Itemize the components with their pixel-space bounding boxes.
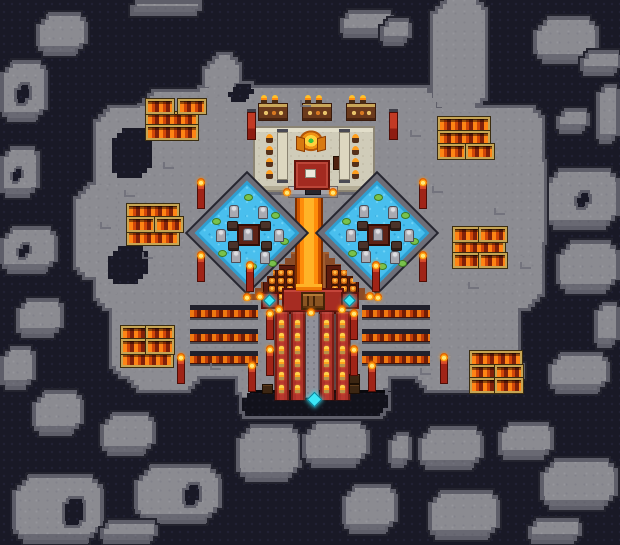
lava-trough [121, 339, 149, 354]
cyan-gem[interactable] [263, 294, 276, 307]
carpet-candle [295, 333, 300, 341]
altar-torch [360, 95, 366, 104]
red-banner [247, 112, 256, 140]
torch-pillar [248, 366, 256, 392]
flame-icon [350, 345, 358, 353]
carpet-candle [295, 320, 300, 328]
ground-crack [124, 190, 135, 197]
central-walkway [305, 312, 319, 398]
torch-pillar [419, 256, 427, 282]
lava-trough [453, 227, 481, 242]
lily-pad [218, 250, 227, 257]
ground-crack [520, 262, 531, 269]
carpet-candle [340, 359, 345, 367]
torch-pillar [266, 314, 274, 340]
flame-icon [243, 293, 251, 301]
lava-jar[interactable] [277, 269, 285, 277]
altar-torch [272, 95, 278, 104]
lava-jar[interactable] [286, 277, 294, 285]
carpet-candle [279, 385, 284, 393]
wall-scroll [339, 132, 350, 180]
flame-icon [350, 309, 358, 317]
flame-icon [177, 353, 185, 361]
torch-pillar [197, 183, 205, 209]
lava-trench [362, 329, 430, 342]
red-carpet [291, 312, 305, 400]
flame-icon [338, 305, 346, 313]
flame-icon [307, 308, 315, 316]
flame-icon [197, 178, 205, 186]
pond-creature[interactable] [228, 241, 239, 251]
ground-crack [468, 282, 479, 289]
flame-icon [419, 178, 427, 186]
lava-trough [146, 339, 174, 354]
lava-jar[interactable] [331, 277, 339, 285]
temple-candle [266, 146, 273, 155]
flame-icon [419, 251, 427, 259]
torch-pillar [350, 350, 358, 376]
ground-crack [210, 363, 221, 370]
carpet-candle [340, 333, 345, 341]
pond-statue[interactable] [361, 250, 371, 263]
lava-trough [470, 378, 498, 393]
red-carpet [320, 312, 334, 400]
lava-jar[interactable] [277, 277, 285, 285]
carpet-candle [295, 385, 300, 393]
carpet-candle [295, 372, 300, 380]
shrine-statue[interactable] [373, 228, 383, 241]
temple-candle [352, 158, 359, 167]
supply-crate[interactable] [349, 384, 360, 394]
pond-statue[interactable] [388, 206, 398, 219]
flame-icon [266, 309, 274, 317]
torch-pillar [177, 358, 185, 384]
lava-jar[interactable] [286, 269, 294, 277]
flame-icon [366, 292, 374, 300]
lily-pad [348, 250, 357, 257]
lava-trench [362, 305, 430, 318]
pond-creature[interactable] [260, 221, 271, 231]
flame-icon [368, 361, 376, 369]
flame-icon [248, 361, 256, 369]
pond-creature[interactable] [358, 241, 369, 251]
carpet-candle [295, 346, 300, 354]
torch-pillar [372, 266, 380, 292]
lava-trough [453, 253, 481, 268]
pond-creature[interactable] [357, 221, 368, 231]
torch-pillar [266, 350, 274, 376]
red-carpet [275, 312, 289, 400]
game-map-stage[interactable] [0, 0, 620, 545]
lava-jar[interactable] [349, 277, 357, 285]
lava-trough [146, 99, 174, 114]
lava-trough [495, 378, 523, 393]
golden-idol[interactable] [296, 130, 326, 154]
pond-statue[interactable] [390, 251, 400, 264]
flame-icon [374, 293, 382, 301]
shrine-statue[interactable] [243, 228, 253, 241]
torch-pillar [440, 358, 448, 384]
carpet-candle [324, 359, 329, 367]
treasure-chest[interactable] [301, 292, 325, 310]
ground-crack [432, 186, 443, 193]
ground-crack [300, 100, 311, 107]
lily-pad [212, 218, 221, 225]
pond-creature[interactable] [261, 241, 272, 251]
torch-pillar [246, 266, 254, 292]
carpet-candle [340, 372, 345, 380]
ground-crack [100, 222, 111, 229]
pond-shrine [367, 224, 390, 246]
cyan-gem[interactable] [343, 294, 356, 307]
flame-icon [266, 345, 274, 353]
pond-statue[interactable] [404, 229, 414, 242]
carpet-candle [295, 359, 300, 367]
ground-crack [410, 130, 421, 137]
carpet-candle [279, 372, 284, 380]
lava-trough [121, 352, 173, 367]
carpet-candle [340, 320, 345, 328]
temple-candle [266, 170, 273, 179]
lava-jar[interactable] [268, 277, 276, 285]
pond-statue[interactable] [346, 229, 356, 242]
ground-crack [142, 252, 153, 259]
altar-torch [349, 95, 355, 104]
pond-statue[interactable] [229, 205, 239, 218]
flame-icon [197, 251, 205, 259]
ground-crack [494, 208, 505, 215]
lava-trench [190, 329, 258, 342]
ground-crack [420, 368, 431, 375]
torch-pillar [197, 256, 205, 282]
carpet-candle [324, 346, 329, 354]
flame-icon [440, 353, 448, 361]
carpet-candle [340, 385, 345, 393]
temple-candle [266, 134, 273, 143]
offering-table[interactable] [258, 103, 288, 121]
carpet-candle [324, 320, 329, 328]
lava-trough [438, 117, 490, 132]
carpet-candle [279, 333, 284, 341]
flame-icon [329, 188, 337, 196]
pond-statue[interactable] [231, 250, 241, 263]
lava-river-mouth [296, 284, 322, 291]
pond-statue[interactable] [216, 229, 226, 242]
flame-icon [372, 261, 380, 269]
temple-candle [352, 134, 359, 143]
torch-pillar [419, 183, 427, 209]
lily-pad [374, 194, 383, 201]
torch-pillar [368, 366, 376, 392]
pond-statue[interactable] [359, 205, 369, 218]
lava-jar[interactable] [331, 269, 339, 277]
lava-trough [438, 144, 466, 159]
lily-pad [342, 218, 351, 225]
temple-candle [266, 158, 273, 167]
pond-creature[interactable] [391, 241, 402, 251]
lava-trough [146, 125, 198, 140]
carpet-candle [279, 359, 284, 367]
lava-river [295, 190, 323, 292]
pond-creature[interactable] [227, 221, 238, 231]
lava-trough [479, 253, 507, 268]
pond-statue[interactable] [258, 206, 268, 219]
carpet-candle [279, 346, 284, 354]
lily-pad [271, 212, 280, 219]
red-banner [389, 112, 398, 140]
pond-statue[interactable] [260, 251, 270, 264]
temple-candle [352, 170, 359, 179]
offering-table[interactable] [346, 103, 376, 121]
lava-jar[interactable] [340, 269, 348, 277]
lava-trough [155, 217, 183, 232]
wall-scroll [277, 132, 288, 180]
flame-icon [283, 188, 291, 196]
lily-pad [401, 212, 410, 219]
flame-icon [246, 261, 254, 269]
lava-trough [178, 99, 206, 114]
pond-shrine [237, 224, 260, 246]
altar-torch [316, 95, 322, 104]
structures-layer [0, 0, 620, 545]
offering-item[interactable] [305, 169, 316, 178]
lava-trough [470, 351, 522, 366]
pond-creature[interactable] [390, 221, 401, 231]
lava-trough [479, 227, 507, 242]
altar-torch [261, 95, 267, 104]
lava-trough [127, 217, 155, 232]
pond-statue[interactable] [274, 229, 284, 242]
carpet-candle [340, 346, 345, 354]
carpet-candle [324, 372, 329, 380]
torch-pillar [350, 314, 358, 340]
carpet-candle [279, 320, 284, 328]
lava-trench [190, 305, 258, 318]
supply-crate[interactable] [262, 384, 273, 394]
temple-candle [352, 146, 359, 155]
carpet-candle [324, 385, 329, 393]
red-carpet [336, 312, 350, 400]
carpet-candle [324, 333, 329, 341]
lava-trough [466, 144, 494, 159]
lily-pad [244, 194, 253, 201]
flame-icon [275, 305, 283, 313]
ground-crack [163, 162, 174, 169]
flame-icon [256, 292, 264, 300]
lava-jar[interactable] [340, 277, 348, 285]
lava-trough [127, 230, 179, 245]
